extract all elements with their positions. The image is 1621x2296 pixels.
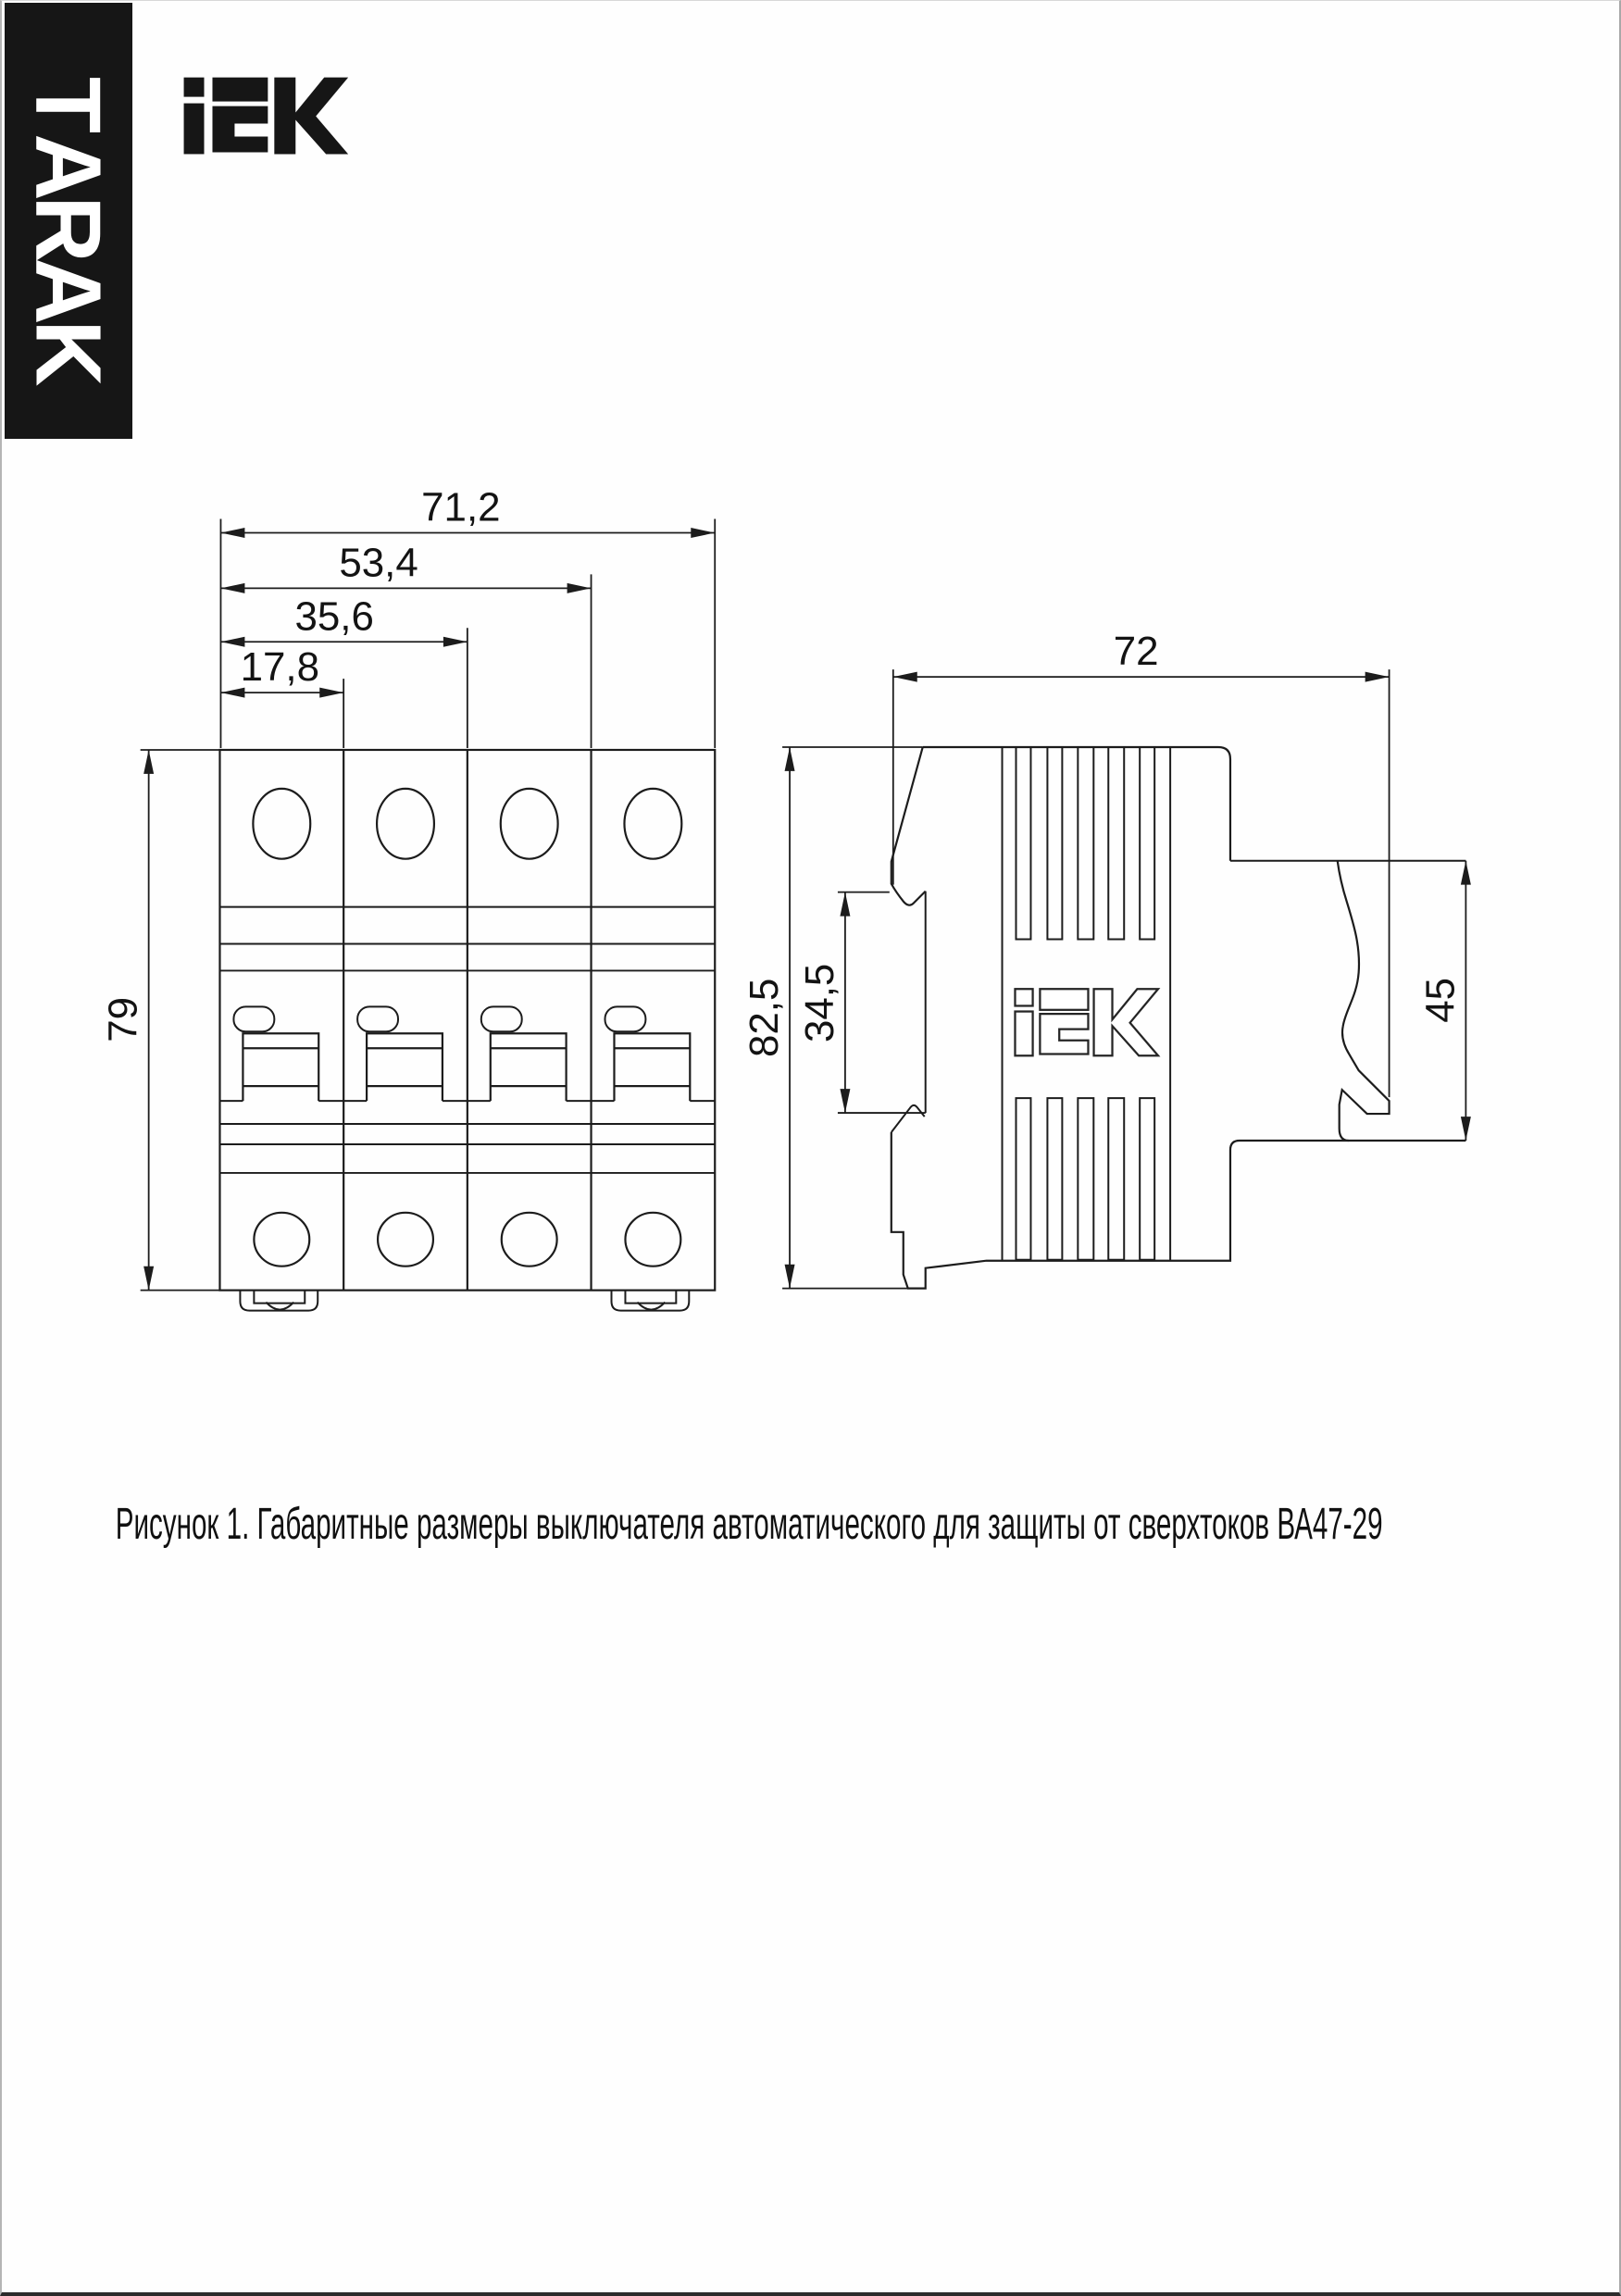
front-din-clips — [240, 1291, 689, 1311]
side-bottom-outline — [892, 1132, 1466, 1289]
technical-drawing: 71,2 53,4 35,6 17,8 — [2, 1, 1619, 2293]
dim-height-79: 79 — [101, 750, 154, 1291]
dim-depth-72: 72 — [893, 629, 1390, 681]
side-rear-hook-and-slant — [892, 747, 926, 905]
side-front-profile-and-toggle-tab — [1338, 861, 1390, 1141]
side-louvres-upper — [1016, 747, 1154, 940]
dim-label-82-5: 82,5 — [742, 979, 787, 1057]
dim-width-3pole: 53,4 — [220, 540, 591, 593]
dim-label-35-6: 35,6 — [294, 593, 373, 639]
dim-front-45: 45 — [1417, 861, 1470, 1141]
datasheet-page: KARAT — [0, 0, 1621, 2296]
front-module-dividers — [343, 750, 591, 1291]
front-label-windows — [233, 1006, 645, 1031]
side-view: 72 82,5 34,5 45 — [742, 629, 1471, 1288]
dim-channel-34-5: 34,5 — [797, 892, 850, 1113]
dim-label-34-5: 34,5 — [797, 964, 842, 1042]
dim-width-1pole: 17,8 — [220, 644, 343, 697]
dim-label-72: 72 — [1114, 629, 1159, 674]
dim-label-79: 79 — [101, 997, 146, 1042]
front-view: 71,2 53,4 35,6 17,8 — [101, 485, 716, 1311]
figure-caption: Рисунок 1. Габаритные размеры выключател… — [116, 1500, 1383, 1549]
front-extension-lines — [141, 519, 716, 1291]
dim-width-total: 71,2 — [220, 485, 715, 538]
iek-logo-embossed-icon — [1015, 989, 1158, 1055]
dim-height-82-5: 82,5 — [742, 747, 794, 1289]
side-top-outline — [923, 747, 1230, 861]
side-din-catch — [892, 1105, 925, 1132]
dim-width-2pole: 35,6 — [220, 593, 467, 646]
dim-label-71-2: 71,2 — [421, 485, 500, 530]
dim-label-45: 45 — [1417, 978, 1463, 1023]
side-extension-lines — [782, 669, 1389, 1288]
dim-label-17-8: 17,8 — [241, 644, 319, 690]
iek-logo-header-icon — [184, 78, 349, 155]
side-louvres-lower — [1016, 1098, 1154, 1260]
dim-label-53-4: 53,4 — [339, 540, 418, 585]
